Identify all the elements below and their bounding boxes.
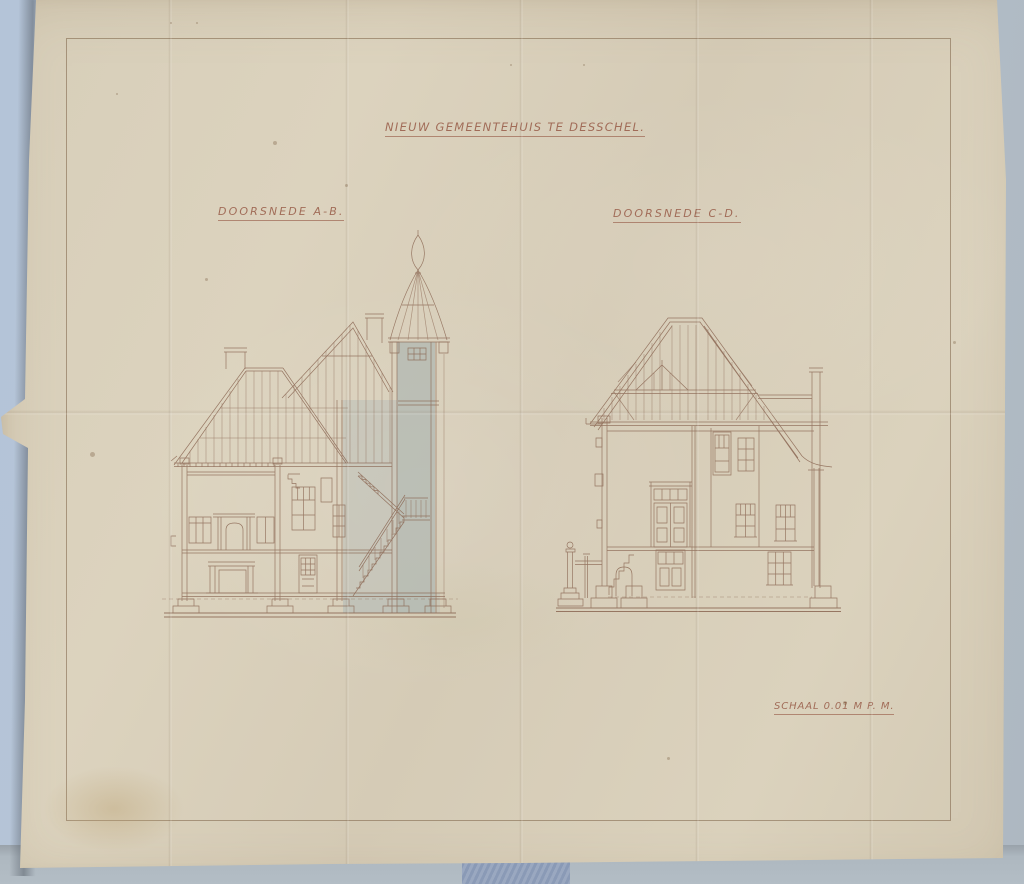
drawing-cross-section-a-b <box>162 230 458 626</box>
sheet-title: NIEUW GEMEENTEHUIS TE DESSCHEL. <box>385 120 645 137</box>
foxing-spot <box>843 701 847 705</box>
fold-crease-vertical <box>168 0 172 866</box>
section-label-c-d: DOORSNEDE C-D. <box>613 207 741 223</box>
foxing-spot <box>116 93 118 95</box>
tower-wash <box>397 342 435 613</box>
fold-crease-vertical <box>869 0 873 866</box>
foxing-spot <box>205 278 208 281</box>
corner-stain <box>44 766 184 852</box>
drawing-sheet: NIEUW GEMEENTEHUIS TE DESSCHEL. DOORSNED… <box>0 0 1024 884</box>
foxing-spot <box>953 341 956 344</box>
stairwell-wash <box>343 400 397 613</box>
blue-fabric-edge <box>462 862 570 884</box>
foxing-spot <box>583 64 585 66</box>
fold-crease-vertical <box>695 0 699 866</box>
foxing-spot <box>170 22 172 24</box>
photo-backdrop: NIEUW GEMEENTEHUIS TE DESSCHEL. DOORSNED… <box>0 0 1024 884</box>
fold-crease-horizontal <box>0 410 1024 415</box>
foxing-spot <box>90 452 95 457</box>
foxing-spot <box>273 141 277 145</box>
section-label-a-b: DOORSNEDE A-B. <box>218 205 344 221</box>
foxing-spot <box>345 184 348 187</box>
scale-note: SCHAAL 0.01 M P. M. <box>774 701 894 715</box>
foxing-spot <box>667 757 670 760</box>
fold-crease-vertical <box>345 0 349 866</box>
foxing-spot <box>196 22 198 24</box>
fold-crease-vertical <box>519 0 523 866</box>
foxing-spot <box>510 64 512 66</box>
